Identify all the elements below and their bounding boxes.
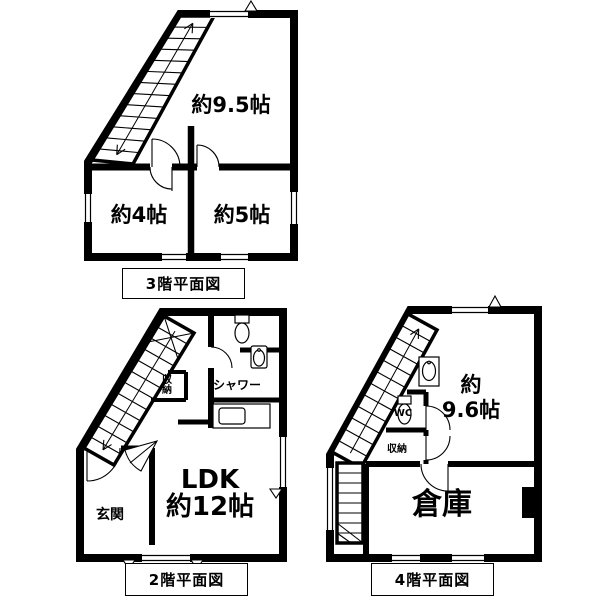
window	[162, 253, 186, 261]
room-label-9-6jo-line2: 9.6帖	[442, 398, 500, 422]
window	[210, 10, 248, 18]
wall-pillar	[522, 487, 534, 518]
kitchen-counter	[213, 404, 270, 428]
room-label-12jo: 約12帖	[166, 491, 254, 522]
window	[392, 554, 420, 562]
window	[452, 306, 488, 314]
floor2-title: 2階平面図	[149, 569, 224, 590]
room-label-9-5jo: 約9.5帖	[191, 93, 270, 117]
vent-triangle-icon	[489, 296, 501, 307]
window	[84, 194, 92, 222]
sink-icon	[251, 346, 267, 368]
room-label-souko: 倉庫	[411, 487, 472, 522]
room-label-closet: 収納	[160, 374, 172, 395]
window	[221, 253, 248, 261]
window	[326, 468, 334, 530]
room-label-closet: 収納	[387, 442, 407, 455]
floor4-title-box: 4階平面図	[371, 563, 494, 596]
floor3-title: 3階平面図	[146, 273, 221, 294]
room-label-9-6jo-line1: 約	[461, 373, 482, 397]
room-label-shower: シャワー	[213, 378, 261, 392]
vent-triangle-icon	[245, 1, 257, 11]
window	[142, 554, 190, 562]
room-label-4jo: 約4帖	[111, 203, 168, 227]
floor4-title: 4階平面図	[395, 569, 470, 590]
window	[452, 554, 484, 562]
floor3-plan: 約9.5帖 約4帖 約5帖	[84, 1, 298, 261]
floorplan-page: 約9.5帖 約4帖 約5帖	[0, 0, 600, 600]
floor4-stairs-lower-flight-icon	[337, 463, 363, 543]
window	[290, 192, 298, 224]
room-label-ldk: LDK	[181, 465, 240, 495]
toilet-icon	[235, 315, 249, 343]
room-label-5jo: 約5帖	[214, 203, 271, 227]
floor4-plan: 約 9.6帖 倉庫 WC 収納	[326, 296, 538, 562]
sink-icon	[419, 357, 439, 386]
floorplan-canvas: 約9.5帖 約4帖 約5帖	[0, 0, 600, 600]
room-label-wc: WC	[394, 408, 412, 419]
floor3-title-box: 3階平面図	[122, 268, 245, 299]
floor2-title-box: 2階平面図	[125, 563, 248, 596]
floor2-plan: LDK 約12帖 玄関 シャワー 収納	[80, 312, 287, 569]
window	[279, 437, 287, 487]
room-label-entrance: 玄関	[96, 506, 124, 523]
